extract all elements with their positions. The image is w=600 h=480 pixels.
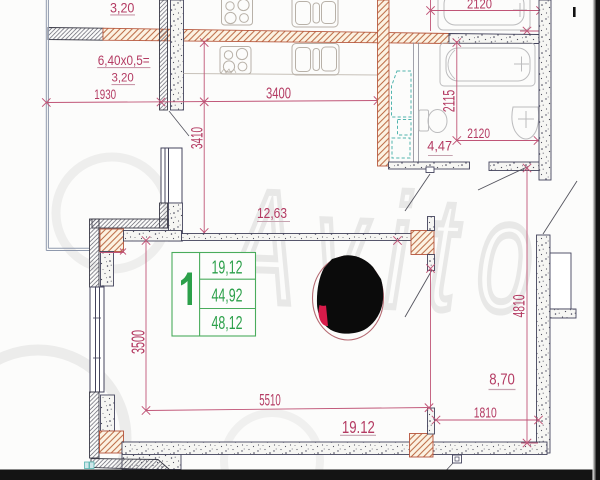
svg-text:3400: 3400 bbox=[266, 85, 291, 102]
svg-text:4,47: 4,47 bbox=[427, 138, 452, 154]
svg-text:3,20: 3,20 bbox=[110, 0, 135, 16]
svg-text:2120: 2120 bbox=[467, 0, 492, 12]
svg-text:1930: 1930 bbox=[94, 87, 116, 102]
svg-text:2120: 2120 bbox=[467, 125, 490, 141]
svg-text:19,12: 19,12 bbox=[212, 257, 243, 278]
svg-text:Avito: Avito bbox=[222, 157, 557, 347]
svg-text:3500: 3500 bbox=[128, 330, 148, 354]
svg-text:2115: 2115 bbox=[439, 90, 458, 112]
svg-text:12,63: 12,63 bbox=[257, 205, 287, 222]
svg-text:4810: 4810 bbox=[509, 295, 528, 318]
svg-text:19.12: 19.12 bbox=[342, 417, 375, 437]
svg-text:3410: 3410 bbox=[188, 127, 207, 149]
svg-text:1810: 1810 bbox=[474, 406, 497, 422]
svg-text:6,40x0,5=: 6,40x0,5= bbox=[98, 53, 150, 68]
svg-text:3,20: 3,20 bbox=[112, 71, 135, 85]
svg-text:5510: 5510 bbox=[259, 392, 281, 410]
svg-text:48,12: 48,12 bbox=[212, 312, 243, 333]
svg-text:44,92: 44,92 bbox=[212, 285, 243, 306]
svg-text:8,70: 8,70 bbox=[489, 372, 515, 389]
